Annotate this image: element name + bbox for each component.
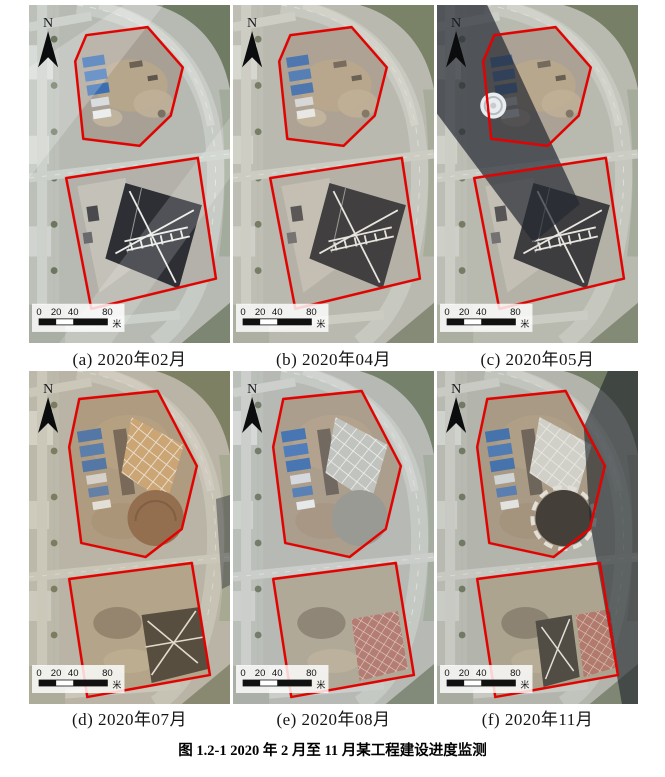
svg-text:80: 80 [102, 668, 113, 679]
scale-bar: 0 20 40 80 米 [236, 304, 328, 332]
panel-c: N 0 20 40 80 米 (c) 2020年05月 [437, 5, 638, 371]
scale-bar: 0 20 40 80 米 [440, 665, 532, 693]
scale-bar: 0 20 40 80 米 [32, 304, 124, 332]
scale-bar: 0 20 40 80 米 [32, 665, 124, 693]
svg-text:0: 0 [444, 668, 449, 679]
satellite-image-d: N 0 20 40 80 米 [29, 371, 230, 704]
figure: N 0 20 40 80 米 (a) 2020年02月 [0, 0, 665, 760]
svg-text:N: N [247, 381, 257, 397]
svg-text:米: 米 [520, 318, 529, 329]
svg-text:20: 20 [51, 668, 62, 679]
svg-text:米: 米 [520, 679, 529, 690]
svg-text:米: 米 [112, 679, 121, 690]
svg-text:N: N [43, 15, 53, 31]
helipad [480, 93, 506, 119]
panel-a-caption: (a) 2020年02月 [29, 343, 230, 371]
svg-text:N: N [451, 15, 461, 31]
panel-e: N 0 20 40 80 米 (e) 2020年08月 [233, 371, 434, 730]
svg-text:0: 0 [240, 668, 245, 679]
svg-text:N: N [451, 381, 461, 397]
svg-text:40: 40 [68, 668, 79, 679]
satellite-image-e: N 0 20 40 80 米 [233, 371, 434, 704]
panel-row-2: N 0 20 40 80 米 (d) 2020年07月 [29, 371, 638, 730]
panel-f: N 0 20 40 80 米 (f) 2020年11月 [437, 371, 638, 730]
svg-text:80: 80 [510, 668, 521, 679]
svg-text:40: 40 [272, 307, 283, 318]
svg-text:80: 80 [306, 668, 317, 679]
scale-bar: 0 20 40 80 米 [440, 304, 532, 332]
svg-text:0: 0 [36, 307, 41, 318]
panel-b: N 0 20 40 80 米 (b) 2020年04月 [233, 5, 434, 371]
svg-text:米: 米 [112, 318, 121, 329]
panel-a: N 0 20 40 80 米 (a) 2020年02月 [29, 5, 230, 371]
svg-text:40: 40 [476, 668, 487, 679]
svg-text:N: N [247, 15, 257, 31]
svg-text:80: 80 [306, 307, 317, 318]
svg-text:40: 40 [272, 668, 283, 679]
svg-text:N: N [43, 381, 53, 397]
panel-d-caption: (d) 2020年07月 [29, 704, 230, 730]
svg-text:0: 0 [444, 307, 449, 318]
panel-b-caption: (b) 2020年04月 [233, 343, 434, 371]
svg-text:40: 40 [68, 307, 79, 318]
satellite-image-a: N 0 20 40 80 米 [29, 5, 230, 343]
scale-bar: 0 20 40 80 米 [236, 665, 328, 693]
svg-text:米: 米 [316, 679, 325, 690]
panel-e-caption: (e) 2020年08月 [233, 704, 434, 730]
svg-text:80: 80 [510, 307, 521, 318]
panel-row-1: N 0 20 40 80 米 (a) 2020年02月 [29, 5, 638, 371]
svg-text:米: 米 [316, 318, 325, 329]
svg-text:80: 80 [102, 307, 113, 318]
panel-d: N 0 20 40 80 米 (d) 2020年07月 [29, 371, 230, 730]
satellite-image-c: N 0 20 40 80 米 [437, 5, 638, 343]
panel-c-caption: (c) 2020年05月 [437, 343, 638, 371]
svg-text:0: 0 [240, 307, 245, 318]
svg-text:40: 40 [476, 307, 487, 318]
svg-text:20: 20 [255, 668, 266, 679]
svg-text:20: 20 [51, 307, 62, 318]
svg-text:20: 20 [255, 307, 266, 318]
figure-caption: 图 1.2-1 2020 年 2 月至 11 月某工程建设进度监测 [0, 739, 665, 760]
panel-f-caption: (f) 2020年11月 [437, 704, 638, 730]
svg-text:20: 20 [459, 668, 470, 679]
svg-text:0: 0 [36, 668, 41, 679]
satellite-image-b: N 0 20 40 80 米 [233, 5, 434, 343]
svg-text:20: 20 [459, 307, 470, 318]
satellite-image-f: N 0 20 40 80 米 [437, 371, 638, 704]
